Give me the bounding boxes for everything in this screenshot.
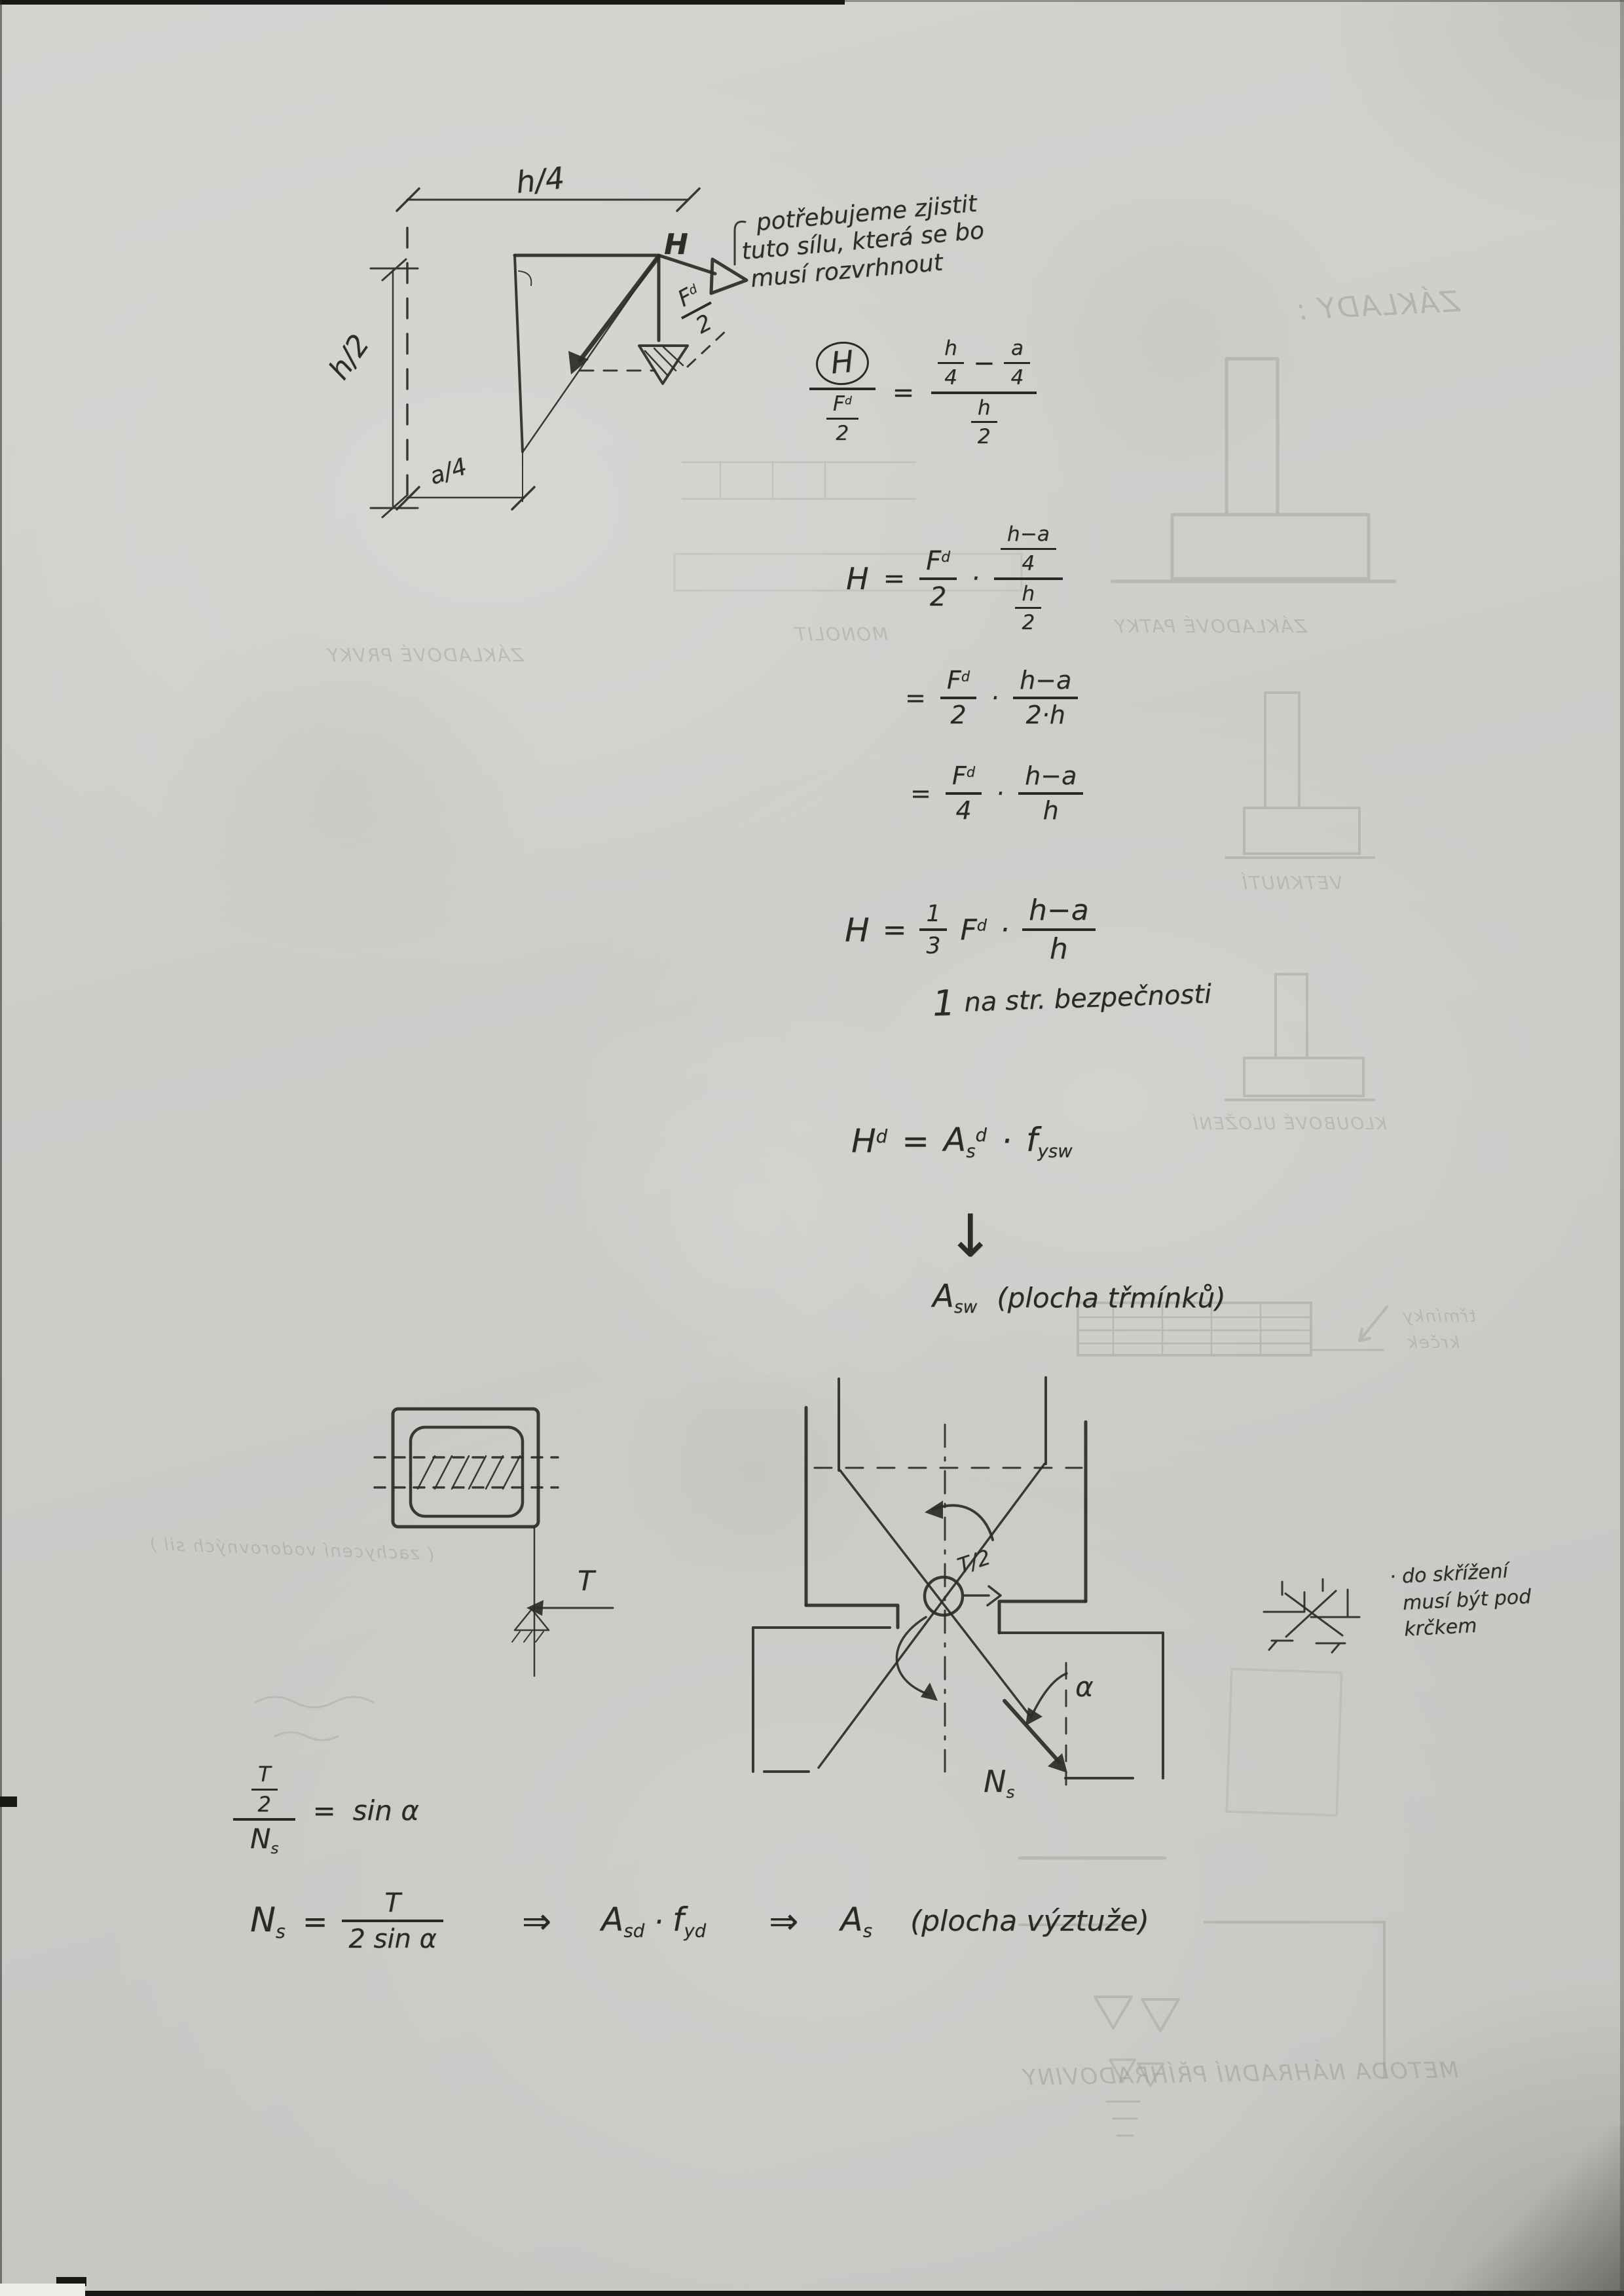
corner-fold-shadow [1454,2126,1624,2296]
right-block [999,1633,1163,1778]
dot-operator: · [1001,1122,1012,1160]
bleed-arrow [1359,1307,1387,1341]
equals-sign: = [883,564,906,594]
dot-operator: · [996,779,1004,808]
equals-sign: = [893,378,915,408]
mini-lines [1264,1579,1359,1617]
bleed-footing1-base [1172,515,1369,579]
dim-h4-label: h/4 [514,160,566,200]
bleed-squiggle [255,1697,373,1740]
ns-label: Ns [984,1764,1015,1802]
fyd-symbol: fyd [673,1901,706,1942]
circled-h: H [814,339,870,387]
implies-arrow: ⇒ [522,1901,551,1942]
equals-sign: = [910,779,931,808]
mini-feet [1269,1641,1345,1652]
down-arrow: ↓ [946,1202,995,1271]
scan-edge-top-right [845,0,1624,2]
dot-operator: · [991,683,999,712]
asw-conclusion: Asw (plocha třmínků) [932,1278,1226,1317]
right-angle-mark [519,271,531,285]
lhs-h: H [846,561,869,596]
scan-mark-left [0,1796,17,1807]
scan-edge-left [0,0,2,2296]
bleed-label-monolit: MONOLIT [794,623,888,645]
equation-hd-design: Hd = Asd · fysw [851,1121,1073,1162]
equation-ns-final: Ns = T2 sin α ⇒ Asd · fyd ⇒ As (plocha v… [250,1889,1149,1953]
equals-sign: = [312,1795,335,1827]
equals-sign: = [883,913,907,947]
t-support-hatch [512,1631,544,1642]
bleed-footing2-base [1244,808,1359,854]
scan-edge-right [1620,0,1624,2296]
ns-arrowhead [1048,1753,1067,1773]
bleed-label-patky: ZÁKLADOVÉ PATKY [1113,615,1307,637]
dim-h2-cap-top [371,259,418,280]
equals-sign: = [905,683,926,712]
bleed-label-krcek1: třmínky [1401,1307,1476,1326]
equation-sin-ratio: T2Ns = sin α [233,1764,419,1857]
equation-ratio: HFd2 = h4 − a4 h2 [809,338,1037,448]
implies-arrow: ⇒ [769,1901,798,1942]
force-h-label: H [664,228,688,261]
alpha-label: α [1075,1671,1094,1703]
section-hatch [418,1456,520,1489]
equation-h-step3: = Fd4 · h−ah [910,763,1083,824]
dot-operator: · [654,1904,663,1939]
bleed-ticks [1107,2102,1139,2136]
as-paren: (plocha výztuže) [910,1904,1149,1938]
h-arrow-head [711,259,747,293]
annotation-right: · do skřížení musí být pod krčkem [1389,1557,1533,1644]
scanned-notes-page: h/4 h/2 a/4 H Fd2 potřebujeme zjistit tu… [0,0,1624,2296]
crossing-diagram [753,1377,1163,1785]
alpha-arc [1031,1673,1067,1718]
safety-note-lead: 1 [932,982,956,1024]
bleed-footing1-column [1227,359,1278,515]
ns-symbol: Ns [250,1901,286,1942]
bleed-label-prvky: ZÁKLADOVÉ PRVKY [326,644,524,666]
dot-operator: · [971,564,980,594]
mini-crossing-sketch [1264,1579,1359,1652]
node-circle [925,1577,963,1615]
asw-paren: (plocha třmínků) [997,1282,1225,1314]
bleed-rect [1227,1669,1342,1815]
bleed-triangle [1095,1997,1132,2028]
t-support [515,1609,549,1630]
equation-h-step2: = Fd2 · h−a2·h [905,668,1078,729]
equals-sign: = [902,1122,929,1160]
dot-operator: · [1000,913,1009,947]
scan-edge-top [0,0,845,5]
bleed-step-outline [1205,1922,1384,2077]
t-force-label: T [578,1565,595,1597]
bleed-label-krcek2: krček [1407,1333,1460,1353]
safety-note-text: na str. bezpečnosti [964,979,1212,1017]
asw-symbol: Asw [932,1278,977,1317]
right-ledge [999,1601,1086,1633]
bleed-footing2-column [1265,693,1299,808]
sin-alpha: sin α [353,1795,419,1827]
mini-diagonal-b [1286,1591,1336,1637]
equation-h-step1: H = Fd2 · h−a4h2 [846,524,1063,634]
equation-h-final: H = 13 Fd · h−ah [845,896,1096,964]
bleed-footing3-column [1276,974,1307,1058]
lhs-h: H [845,911,870,949]
cross-section-sketch [375,1409,613,1676]
bleed-footing3-base [1244,1058,1363,1096]
bleed-label-kloub: KLOUBOVÉ ULOŽENÍ [1192,1114,1387,1134]
scan-sliver-bottom-left [0,2284,85,2296]
bleed-triangle [1142,1999,1179,2031]
dim-h2-cap-bottom [371,496,418,517]
asd-symbol: Asd [601,1901,644,1942]
figure-left-edge [515,255,523,452]
top-angle-arrowhead [925,1501,943,1519]
scan-edge-bottom [85,2291,1624,2296]
minus-sign: − [973,350,995,377]
equals-sign: = [303,1904,328,1939]
bleed-eq-lines [682,462,915,499]
as-symbol: As [840,1901,872,1942]
bleed-label-vetknuti: VETKNUTÍ [1241,872,1342,894]
left-ledge [806,1605,898,1628]
